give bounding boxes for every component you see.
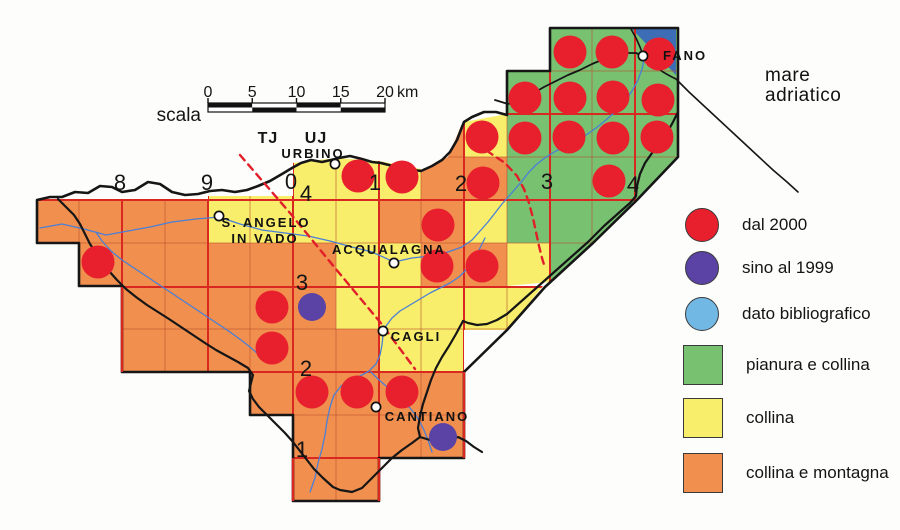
legend-item-collina-e-montagna: collina e montagna — [673, 453, 889, 493]
scale-bar-segment — [208, 103, 252, 108]
grid-number-4: 4 — [627, 172, 639, 197]
record-dot-red — [509, 122, 542, 155]
grid-zone-label-TJ: TJ — [258, 130, 279, 147]
record-dot-red — [554, 36, 587, 69]
scale-tick-label-20: 20 — [376, 84, 394, 101]
record-dot-purple — [429, 423, 457, 451]
scale-tick-label-10: 10 — [288, 84, 306, 101]
grid-zone-label-UJ: UJ — [305, 130, 327, 147]
record-dot-red — [509, 82, 542, 115]
legend-item-dal-2000: dal 2000 — [673, 208, 807, 242]
scale-bar-segment — [252, 108, 296, 113]
legend-marker-yellow-square — [683, 398, 723, 438]
record-dot-red — [256, 291, 289, 324]
legend-item-label: collina e montagna — [746, 463, 889, 483]
legend-item-label: dal 2000 — [742, 215, 807, 235]
grid-number-8: 8 — [114, 170, 126, 195]
grid-number-3: 3 — [541, 169, 553, 194]
record-dot-red — [82, 246, 115, 279]
grid-number-9: 9 — [201, 170, 213, 195]
record-dot-red — [466, 250, 499, 283]
scale-bar-segment — [297, 103, 341, 108]
scale-bar-segment — [208, 108, 252, 113]
scale-bar-segment — [252, 103, 296, 108]
record-dot-red — [553, 121, 586, 154]
legend-item-pianura-e-collina: pianura e collina — [673, 345, 870, 385]
record-dot-red — [642, 84, 675, 117]
record-dot-red — [256, 332, 289, 365]
grid-number-1: 1 — [296, 437, 308, 462]
legend-item-label: sino al 1999 — [742, 258, 834, 278]
record-dot-red — [596, 36, 629, 69]
legend-item-label: collina — [746, 408, 794, 428]
scale-unit-label: km — [397, 84, 418, 101]
legend-marker-red-circle — [685, 208, 719, 242]
grid-number-1: 1 — [369, 170, 381, 195]
legend-item-label: pianura e collina — [746, 355, 870, 375]
grid-number-0: 0 — [285, 169, 297, 194]
town-label-in-vado: IN VADO — [231, 231, 298, 246]
grid-number-2: 2 — [455, 171, 467, 196]
record-dot-red — [597, 122, 630, 155]
grid-number-2: 2 — [300, 356, 312, 381]
legend-item-collina: collina — [673, 398, 794, 438]
grid-number-4: 4 — [300, 181, 312, 206]
town-label-cantiano: CANTIANO — [385, 409, 470, 424]
legend-marker-green-square — [683, 345, 723, 385]
record-dot-red — [341, 376, 374, 409]
record-dot-purple — [298, 293, 326, 321]
town-dot — [371, 402, 380, 411]
grid-number-3: 3 — [296, 270, 308, 295]
scale-tick-label-0: 0 — [204, 84, 213, 101]
record-dot-red — [593, 165, 626, 198]
scale-bar-segment — [341, 103, 385, 108]
record-dot-red — [554, 82, 587, 115]
legend-marker-lightblue-circle — [685, 297, 719, 331]
scale-bar-segment — [297, 108, 341, 113]
town-label-acqualagna: ACQUALAGNA — [332, 242, 446, 257]
scale-bar-label: scala — [157, 105, 202, 126]
legend-item-label: dato bibliografico — [742, 304, 871, 324]
record-dot-red — [467, 167, 500, 200]
record-dot-red — [466, 121, 499, 154]
legend-marker-orange-square — [683, 453, 723, 493]
scale-tick-label-5: 5 — [248, 84, 257, 101]
legend: dal 2000 sino al 1999 dato bibliografico… — [673, 0, 898, 530]
town-dot — [638, 51, 647, 60]
legend-item-sino-al-1999: sino al 1999 — [673, 251, 834, 285]
record-dot-red — [386, 376, 419, 409]
record-dot-red — [641, 121, 674, 154]
scale-bar-segment — [341, 108, 385, 113]
record-dot-red — [422, 209, 455, 242]
town-dot — [378, 326, 387, 335]
town-label-urbino: URBINO — [281, 146, 344, 161]
record-dot-red — [386, 161, 419, 194]
legend-marker-purple-circle — [685, 251, 719, 285]
distribution-map-figure: URBINOS. ANGELOIN VADOACQUALAGNACAGLICAN… — [0, 0, 900, 530]
scale-tick-label-15: 15 — [332, 84, 350, 101]
town-label-cagli: CAGLI — [391, 329, 441, 344]
record-dot-red — [597, 81, 630, 114]
legend-item-dato-bibliografico: dato bibliografico — [673, 297, 871, 331]
town-label-s-angelo: S. ANGELO — [221, 215, 310, 230]
town-dot — [389, 258, 398, 267]
